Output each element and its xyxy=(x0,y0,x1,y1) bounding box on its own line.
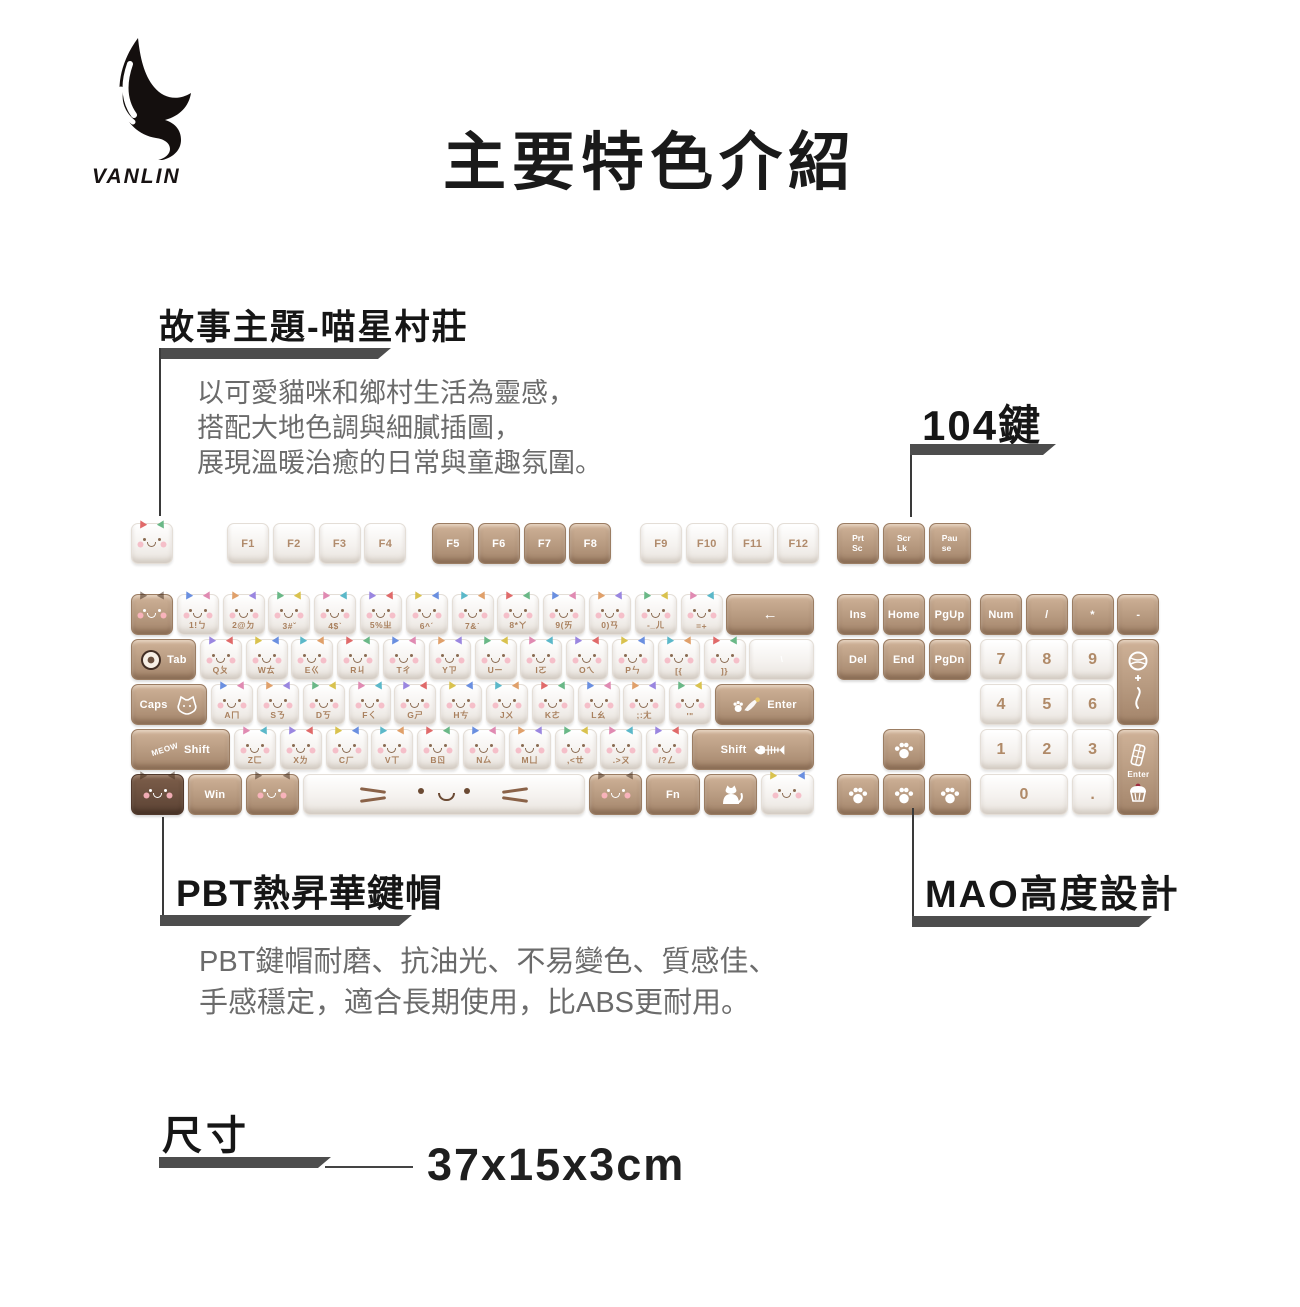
key-i: Iㄛ xyxy=(520,639,562,680)
key-z: Zㄈ xyxy=(234,729,276,770)
key-delete: Del xyxy=(837,639,879,680)
key-esc xyxy=(131,523,173,564)
story-line-2: 搭配大地色調與細膩插圖， xyxy=(197,411,602,446)
key-a: Aㄇ xyxy=(211,684,253,725)
key-pause: Pause xyxy=(929,523,971,564)
key-caps-lock: Caps xyxy=(131,684,207,725)
key-g: Gㄕ xyxy=(394,684,436,725)
key-c: Cㄏ xyxy=(326,729,368,770)
wafer-icon xyxy=(1129,743,1147,767)
key-d: Dㄎ xyxy=(303,684,345,725)
key-left-ctrl xyxy=(131,774,184,815)
key-0: 0)ㄢ xyxy=(589,594,631,635)
key-count-underline xyxy=(910,444,1056,455)
size-heading: 尺寸 xyxy=(162,1103,250,1161)
cat-body-icon xyxy=(717,784,743,806)
key-slash: /?ㄥ xyxy=(646,729,688,770)
key-numpad-multiply: * xyxy=(1072,594,1114,635)
meow-sticker: MEOW xyxy=(151,741,180,758)
pbt-line-1: PBT鍵帽耐磨、抗油光、不易變色、質感佳、 xyxy=(199,942,777,983)
key-0: 0 xyxy=(980,774,1068,815)
key-enter: Enter xyxy=(715,684,814,725)
key-numpad-divide: / xyxy=(1026,594,1068,635)
key-j: Jㄨ xyxy=(486,684,528,725)
paw-icon xyxy=(939,785,961,805)
mao-underline xyxy=(912,916,1152,927)
cat-outline-icon xyxy=(173,694,199,716)
key-q: Qㄆ xyxy=(200,639,242,680)
key-p: Pㄣ xyxy=(612,639,654,680)
key-8: 8 xyxy=(1026,639,1068,680)
key-f: Fㄑ xyxy=(349,684,391,725)
pbt-heading: PBT熱昇華鍵帽 xyxy=(176,863,443,917)
key-comma: ,<ㄝ xyxy=(555,729,597,770)
key-count-callout-line xyxy=(910,455,912,517)
key-period: .>ㄡ xyxy=(600,729,642,770)
page-title: 主要特色介紹 xyxy=(0,112,1300,203)
key-4: 4 xyxy=(980,684,1022,725)
key-7: 7&˙ xyxy=(452,594,494,635)
mao-callout-line xyxy=(912,808,914,916)
keyboard-illustration: F1F2F3F4F5F6F7F8F9F10F11F12PrtScScrLkPau… xyxy=(131,517,1166,817)
fishbone-icon xyxy=(752,741,786,759)
key-arrow-left xyxy=(837,774,879,815)
yarn-icon xyxy=(1126,650,1150,714)
key-arrow-up xyxy=(883,729,925,770)
pbt-line-2: 手感穩定，適合長期使用，比ABS更耐用。 xyxy=(199,983,777,1024)
key-numpad-dot: . xyxy=(1072,774,1114,815)
key-tab: Tab xyxy=(131,639,196,680)
size-leader-line xyxy=(325,1166,413,1168)
key-9: 9 xyxy=(1072,639,1114,680)
key-w: Wㄊ xyxy=(246,639,288,680)
spacebar-cat-face xyxy=(360,786,528,804)
key-3: 3#ˇ xyxy=(268,594,310,635)
key-4: 4$ˋ xyxy=(314,594,356,635)
key-m: Mㄩ xyxy=(509,729,551,770)
key-6: 6 xyxy=(1072,684,1114,725)
key-scroll-lock: ScrLk xyxy=(883,523,925,564)
paw-icon xyxy=(893,740,915,760)
key-home: Home xyxy=(883,594,925,635)
key-page-down: PgDn xyxy=(929,639,971,680)
key-right-alt xyxy=(589,774,642,815)
key-numpad-minus: - xyxy=(1117,594,1159,635)
key-v: Vㄒ xyxy=(371,729,413,770)
key-y: Yㄗ xyxy=(429,639,471,680)
key-f12: F12 xyxy=(777,523,819,564)
key-insert: Ins xyxy=(837,594,879,635)
key-space xyxy=(303,774,585,815)
key-num-lock: Num xyxy=(980,594,1022,635)
key-f2: F2 xyxy=(273,523,315,564)
key-print-screen: PrtSc xyxy=(837,523,879,564)
size-underline xyxy=(159,1157,331,1168)
key-f3: F3 xyxy=(319,523,361,564)
story-line-1: 以可愛貓咪和鄉村生活為靈感， xyxy=(197,376,602,411)
key-e: Eㄍ xyxy=(291,639,333,680)
key-9: 9(ㄞ xyxy=(543,594,585,635)
key-t: Tㄔ xyxy=(383,639,425,680)
key-f11: F11 xyxy=(732,523,774,564)
key-2: 2@ㄉ xyxy=(223,594,265,635)
key-l: Lㄠ xyxy=(578,684,620,725)
key-1: 1 xyxy=(980,729,1022,770)
story-heading: 故事主題-喵星村莊 xyxy=(159,299,469,350)
key-minus: -_ㄦ xyxy=(635,594,677,635)
key-8: 8*ㄚ xyxy=(497,594,539,635)
key-arrow-right xyxy=(929,774,971,815)
donut-icon xyxy=(140,649,162,671)
story-underline xyxy=(159,348,391,359)
key-5: 5%ㄓ xyxy=(360,594,402,635)
mao-heading: MAO高度設計 xyxy=(925,863,1180,918)
paw-icon xyxy=(893,785,915,805)
key-backquote xyxy=(131,594,173,635)
key-s: Sㄋ xyxy=(257,684,299,725)
story-callout-line xyxy=(159,348,161,516)
key-end: End xyxy=(883,639,925,680)
pbt-callout-line xyxy=(162,817,164,916)
key-1: 1!ㄅ xyxy=(177,594,219,635)
key-arrow-down xyxy=(883,774,925,815)
key-f9: F9 xyxy=(640,523,682,564)
story-paragraph: 以可愛貓咪和鄉村生活為靈感， 搭配大地色調與細膩插圖， 展現溫暖治癒的日常與童趣… xyxy=(197,376,602,481)
key-r: Rㄐ xyxy=(337,639,379,680)
key-left-alt xyxy=(246,774,299,815)
key-b: Bㄖ xyxy=(417,729,459,770)
key-backspace: ← xyxy=(726,594,814,635)
paw-feather-icon xyxy=(732,695,762,715)
key-backslash: \ xyxy=(749,639,814,680)
size-value: 37x15x3cm xyxy=(427,1139,685,1191)
key-3: 3 xyxy=(1072,729,1114,770)
key-5: 5 xyxy=(1026,684,1068,725)
key-win: Win xyxy=(188,774,241,815)
pbt-paragraph: PBT鍵帽耐磨、抗油光、不易變色、質感佳、 手感穩定，適合長期使用，比ABS更耐… xyxy=(199,942,777,1024)
key-x: Xㄌ xyxy=(280,729,322,770)
key-menu xyxy=(704,774,757,815)
key-h: Hㄘ xyxy=(440,684,482,725)
key-u: Uㄧ xyxy=(475,639,517,680)
cupcake-icon xyxy=(1126,782,1150,802)
key-f7: F7 xyxy=(524,523,566,564)
key-bracket-right: ]} xyxy=(704,639,746,680)
key-f6: F6 xyxy=(478,523,520,564)
pbt-underline xyxy=(160,915,412,926)
key-numpad-plus xyxy=(1117,639,1159,725)
key-7: 7 xyxy=(980,639,1022,680)
key-2: 2 xyxy=(1026,729,1068,770)
key-6: 6^ˊ xyxy=(406,594,448,635)
key-fn: Fn xyxy=(646,774,699,815)
key-quote: '" xyxy=(669,684,711,725)
key-page-up: PgUp xyxy=(929,594,971,635)
key-bracket-left: [{ xyxy=(658,639,700,680)
key-k: Kㄜ xyxy=(532,684,574,725)
key-semicolon: ;:ㄤ xyxy=(623,684,665,725)
key-f8: F8 xyxy=(569,523,611,564)
key-f1: F1 xyxy=(227,523,269,564)
key-right-ctrl xyxy=(761,774,814,815)
key-o: Oㄟ xyxy=(566,639,608,680)
key-numpad-enter: Enter xyxy=(1117,729,1159,815)
key-f4: F4 xyxy=(364,523,406,564)
key-count-label: 104鍵 xyxy=(922,392,1042,453)
key-equals: =+ xyxy=(681,594,723,635)
story-line-3: 展現溫暖治癒的日常與童趣氛圍。 xyxy=(197,446,602,481)
paw-icon xyxy=(847,785,869,805)
key-right-shift: Shift xyxy=(692,729,814,770)
key-f10: F10 xyxy=(686,523,728,564)
key-f5: F5 xyxy=(432,523,474,564)
key-n: Nㄙ xyxy=(463,729,505,770)
key-left-shift: MEOWShift xyxy=(131,729,230,770)
